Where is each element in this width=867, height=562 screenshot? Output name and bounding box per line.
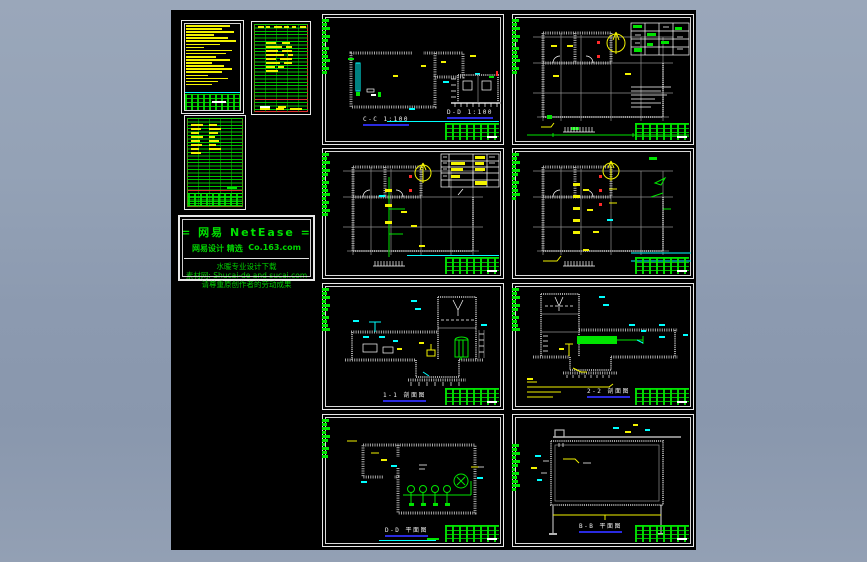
title-block-text — [212, 101, 226, 103]
sheet-plan-drain[interactable] — [322, 148, 504, 279]
sheet-plan-cc[interactable]: C-C 1:100 D-D 1:100 — [322, 14, 504, 145]
table-footer-text — [260, 106, 270, 108]
drawing-caption: 1-1 剖面图 — [383, 390, 426, 402]
title-block — [445, 388, 499, 405]
title-accent-line — [407, 255, 499, 256]
sheet-edge-notes — [512, 443, 521, 491]
title-block — [635, 525, 689, 542]
sheet-edge-notes — [322, 287, 331, 331]
sheet-section-1-1[interactable]: 1-1 剖面图 — [322, 283, 504, 410]
sheet-edge-notes — [512, 287, 521, 331]
title-block — [635, 388, 689, 405]
table-footer-line — [255, 99, 307, 100]
sheet-plan-water[interactable] — [512, 148, 694, 279]
netease-watermark: = 网易 NetEase = 网易设计 精选 Co.163.com 水暖专业设计… — [178, 215, 315, 281]
title-block — [635, 123, 689, 140]
sheet-plan-schedule[interactable] — [512, 14, 694, 145]
sheet-tank-plan[interactable]: B-B 平面图 — [512, 414, 694, 547]
drawing-caption: B-B 平面图 — [579, 521, 622, 533]
sheet-section-2-2[interactable]: 2-2 剖面图 — [512, 283, 694, 410]
drawing-caption: D-D 平面图 — [385, 525, 428, 537]
cad-workspace: = 网易 NetEase = 网易设计 精选 Co.163.com 水暖专业设计… — [0, 0, 867, 562]
title-block — [445, 123, 499, 140]
sheet-edge-notes — [512, 18, 521, 74]
drawing-caption: C-C 1:100 — [363, 116, 409, 126]
drawing-caption-2: D-D 1:100 — [447, 109, 493, 119]
drawing-caption: 2-2 剖面图 — [587, 386, 630, 398]
table-corner-mark — [227, 187, 237, 189]
equipment-table-sheet[interactable] — [184, 115, 246, 210]
table-footer-mark — [278, 106, 286, 108]
notes-text-lines — [186, 25, 239, 89]
title-block — [445, 525, 499, 542]
table-footer-line — [188, 190, 242, 191]
notes-divider-line — [185, 92, 240, 93]
sheet-edge-notes — [322, 152, 331, 216]
drawing-canvas[interactable]: = 网易 NetEase = 网易设计 精选 Co.163.com 水暖专业设计… — [171, 10, 696, 550]
sheet-edge-notes — [322, 18, 331, 74]
material-table-sheet[interactable] — [251, 21, 311, 115]
sheet-pump-plan[interactable]: D-D 平面图 — [322, 414, 504, 547]
watermark-inner-frame — [182, 219, 311, 277]
sheet-edge-notes — [322, 418, 331, 458]
title-block — [635, 257, 689, 274]
general-notes-sheet[interactable] — [181, 20, 244, 114]
table-title-block — [188, 193, 242, 206]
title-block — [445, 257, 499, 274]
watermark-note-3: 请尊重原创作者的劳动成果 — [180, 280, 313, 289]
sheet-edge-notes — [512, 152, 521, 200]
